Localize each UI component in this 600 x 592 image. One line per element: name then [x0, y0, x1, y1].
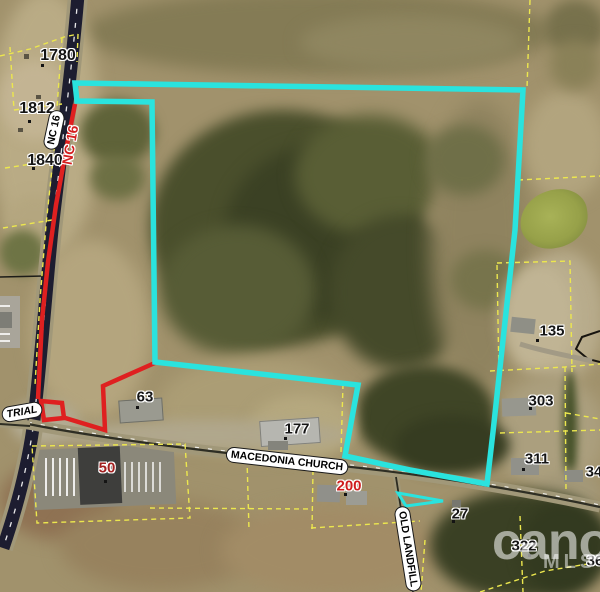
- terrain-patch: [523, 90, 600, 200]
- parcel-label-1780: 1780: [40, 47, 76, 65]
- boundary-subject-sliver: [398, 493, 443, 506]
- parcel-label-177: 177: [284, 421, 309, 438]
- terrain-patch: [30, 240, 150, 420]
- small-structure: [18, 128, 23, 132]
- parcel-label-311: 311: [525, 451, 549, 468]
- driveway-west: [0, 276, 44, 277]
- parcel-label-63: 63: [137, 389, 154, 406]
- building: [0, 312, 12, 328]
- parcel-dot: [104, 480, 107, 483]
- house-34: [564, 470, 583, 482]
- terrain-patch: [425, 125, 505, 195]
- parcel-label-303: 303: [528, 393, 553, 410]
- building-177-wing: [268, 441, 288, 450]
- parcel-label-36: 36: [587, 553, 600, 570]
- terrain-patch: [300, 15, 520, 70]
- parcel-label-322: 322: [511, 538, 536, 555]
- terrain-patch: [0, 230, 45, 275]
- terrain-patch: [550, 40, 600, 90]
- parcel-label-34: 34: [586, 464, 600, 481]
- parcel-label-1840: 1840: [27, 152, 63, 170]
- parcel-label-27: 27: [452, 506, 469, 523]
- terrain-forest: [160, 225, 315, 355]
- small-structure: [24, 54, 29, 59]
- parcel-label-200: 200: [336, 478, 361, 495]
- parked-cars: [45, 458, 77, 496]
- parcel-label-50: 50: [99, 460, 116, 477]
- parked-cars: [124, 462, 162, 492]
- terrain-forest: [295, 115, 445, 235]
- parcel-label-135: 135: [539, 323, 564, 340]
- parcel-dot: [136, 406, 139, 409]
- terrain-forest: [395, 415, 510, 475]
- house-135: [510, 317, 535, 334]
- small-structure: [36, 95, 41, 99]
- parcel-dot: [28, 120, 31, 123]
- parcel-dot: [522, 468, 525, 471]
- terrain-patch: [90, 155, 145, 200]
- aerial-parcel-map: 1780 1812 1840 63 177 200 50 135 303 311…: [0, 0, 600, 592]
